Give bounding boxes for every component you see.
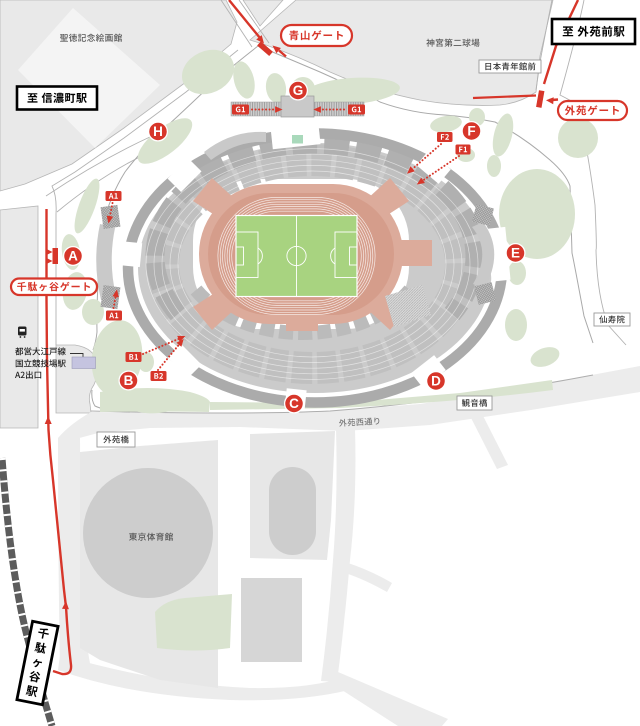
svg-text:F: F — [467, 124, 475, 139]
svg-text:C: C — [289, 396, 299, 411]
svg-text:G: G — [293, 83, 304, 98]
svg-text:B: B — [124, 373, 134, 388]
svg-text:A: A — [68, 249, 78, 264]
svg-text:E: E — [511, 246, 520, 261]
svg-text:D: D — [431, 374, 441, 389]
svg-text:H: H — [153, 124, 163, 139]
